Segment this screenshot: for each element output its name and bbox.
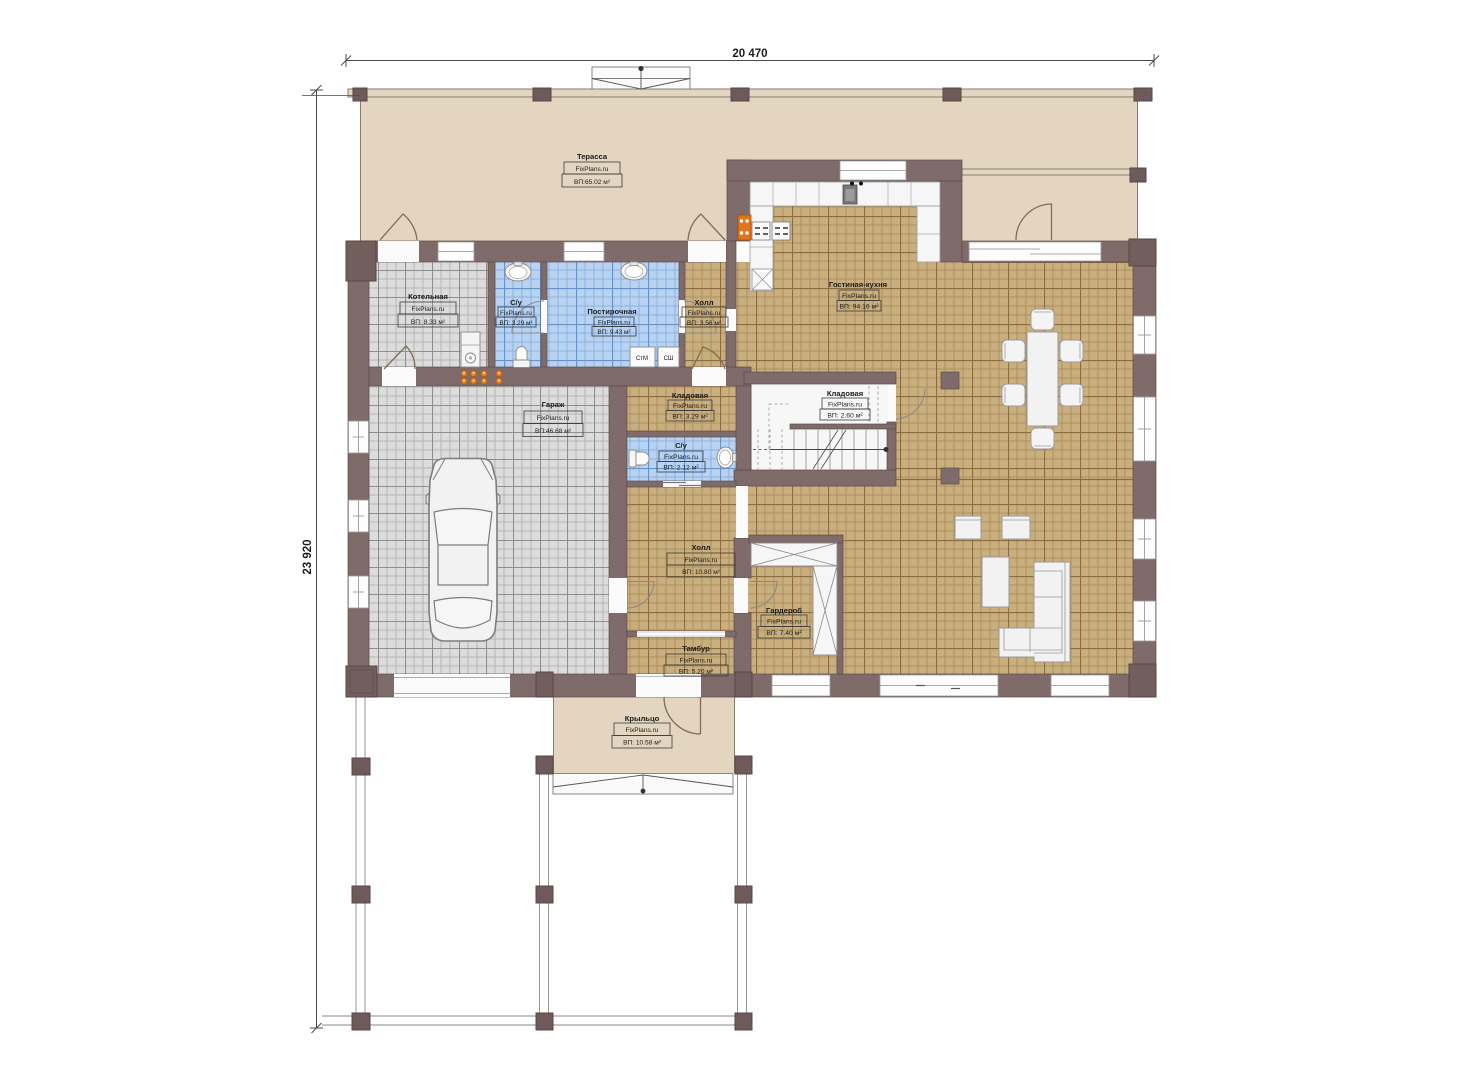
svg-text:ВП:46.68 м²: ВП:46.68 м² [535, 428, 572, 435]
svg-text:Терасса: Терасса [577, 152, 608, 161]
svg-text:ВП: 2.12 м²: ВП: 2.12 м² [663, 465, 699, 472]
svg-text:FixPlans.ru: FixPlans.ru [664, 454, 698, 461]
svg-text:Крыльцо: Крыльцо [625, 714, 660, 723]
svg-text:ВП: 9.43 м²: ВП: 9.43 м² [597, 329, 630, 336]
svg-text:FixPlans.ru: FixPlans.ru [680, 658, 713, 665]
svg-text:FixPlans.ru: FixPlans.ru [412, 306, 445, 313]
svg-text:Кладовая: Кладовая [672, 391, 708, 400]
svg-text:ВП: 10.58 м²: ВП: 10.58 м² [623, 740, 662, 747]
svg-text:Гостиная-кухня: Гостиная-кухня [829, 280, 887, 289]
svg-text:FixPlans.ru: FixPlans.ru [598, 320, 630, 327]
svg-text:FixPlans.ru: FixPlans.ru [685, 557, 718, 564]
svg-text:FixPlans.ru: FixPlans.ru [688, 310, 721, 317]
svg-text:FixPlans.ru: FixPlans.ru [842, 293, 876, 300]
svg-text:Кладовая: Кладовая [827, 389, 863, 398]
svg-text:Гардероб: Гардероб [766, 606, 802, 615]
svg-text:23 920: 23 920 [302, 539, 314, 574]
svg-text:ВП: 3.29 м²: ВП: 3.29 м² [499, 320, 532, 327]
svg-text:ВП: 2.60 м²: ВП: 2.60 м² [827, 413, 863, 420]
svg-text:FixPlans.ru: FixPlans.ru [537, 415, 570, 422]
svg-text:FixPlans.ru: FixPlans.ru [767, 619, 801, 626]
svg-text:FixPlans.ru: FixPlans.ru [500, 310, 532, 317]
svg-text:FixPlans.ru: FixPlans.ru [828, 402, 862, 409]
svg-text:СтМ: СтМ [636, 356, 648, 362]
svg-text:FixPlans.ru: FixPlans.ru [673, 403, 707, 410]
svg-text:20 470: 20 470 [732, 48, 767, 60]
svg-text:Постирочная: Постирочная [587, 307, 636, 316]
svg-text:ВП: 10.80 м²: ВП: 10.80 м² [682, 569, 721, 576]
svg-text:ВП: 7.40 м²: ВП: 7.40 м² [766, 630, 802, 637]
svg-text:ВП: 94.16 м²: ВП: 94.16 м² [839, 304, 879, 311]
svg-text:Холл: Холл [694, 298, 713, 307]
svg-text:FixPlans.ru: FixPlans.ru [576, 166, 609, 173]
svg-text:СШ: СШ [664, 356, 674, 362]
svg-text:С/у: С/у [510, 298, 523, 307]
svg-text:Котельная: Котельная [408, 292, 448, 301]
svg-text:ВП: 3.29 м²: ВП: 3.29 м² [672, 414, 708, 421]
svg-text:FixPlans.ru: FixPlans.ru [626, 727, 659, 734]
svg-text:Тамбур: Тамбур [682, 644, 710, 653]
svg-text:Гараж: Гараж [542, 400, 565, 409]
svg-text:Холл: Холл [691, 543, 710, 552]
svg-text:ВП: 8.33 м²: ВП: 8.33 м² [411, 319, 446, 326]
svg-text:ВП:65.02 м²: ВП:65.02 м² [574, 179, 611, 186]
svg-text:ВП: 5.20 м²: ВП: 5.20 м² [679, 669, 714, 676]
svg-text:С/у: С/у [675, 441, 688, 450]
svg-text:ВП: 3.56 м²: ВП: 3.56 м² [687, 320, 722, 327]
